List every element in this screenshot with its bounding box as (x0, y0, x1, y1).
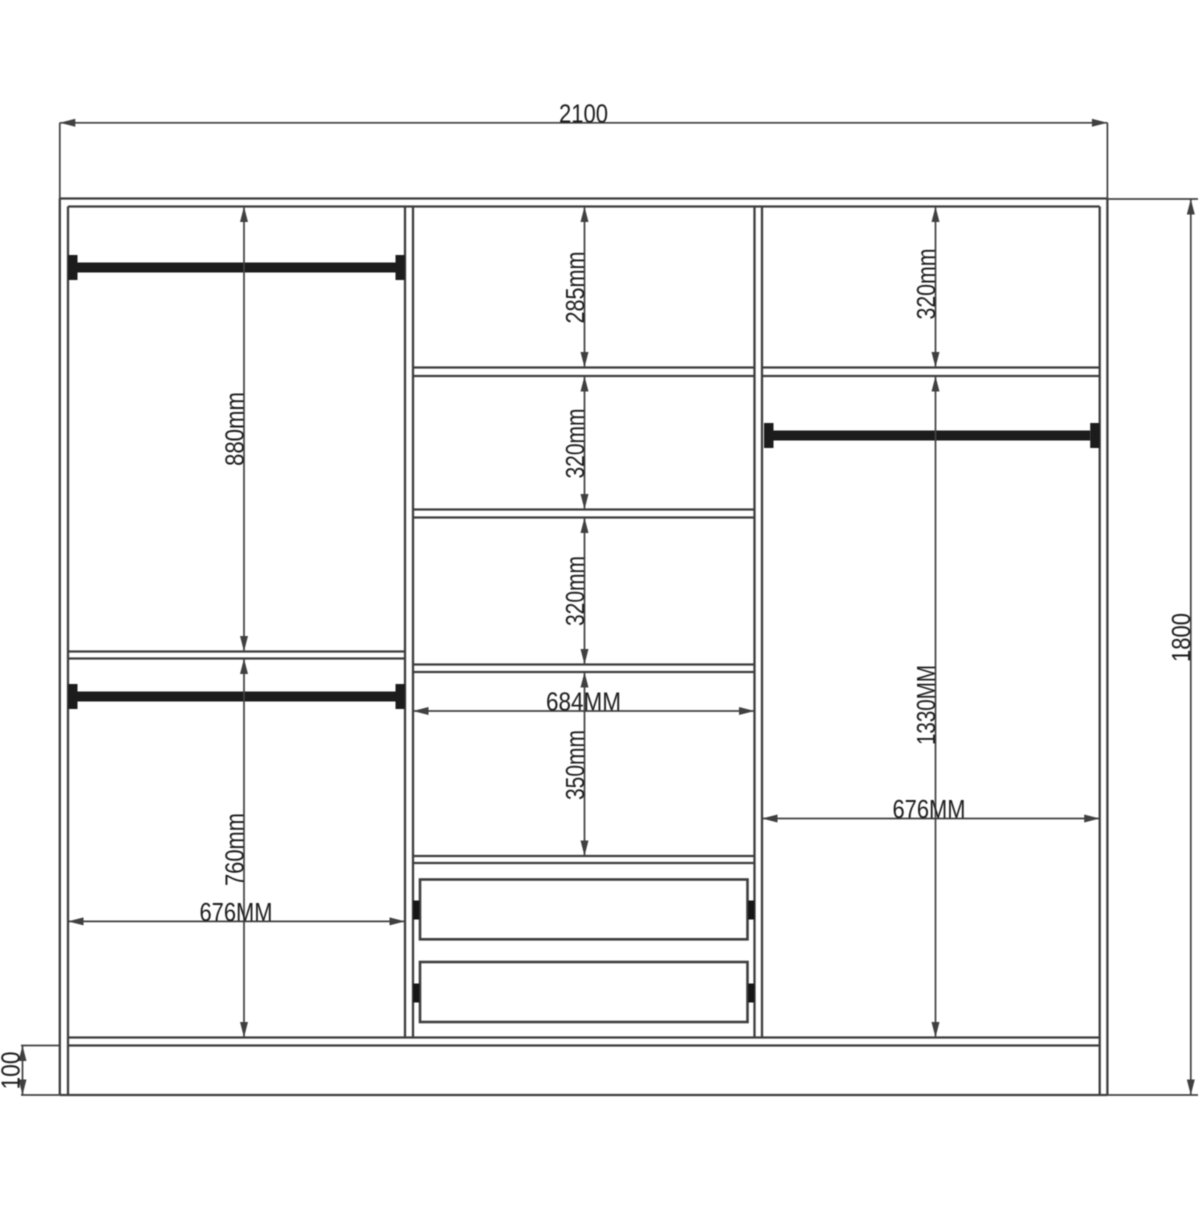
svg-text:1330MM: 1330MM (911, 665, 941, 745)
svg-text:760mm: 760mm (220, 813, 250, 886)
svg-text:684MM: 684MM (546, 687, 621, 717)
svg-text:1800: 1800 (1166, 613, 1196, 662)
svg-text:285mm: 285mm (560, 252, 590, 324)
svg-text:676MM: 676MM (893, 794, 966, 824)
svg-text:320mm: 320mm (560, 556, 590, 626)
svg-text:320mm: 320mm (911, 249, 941, 320)
svg-text:880mm: 880mm (220, 392, 250, 466)
svg-text:350mm: 350mm (560, 730, 590, 800)
svg-text:2100: 2100 (559, 98, 608, 128)
svg-text:676MM: 676MM (200, 897, 273, 927)
svg-text:100: 100 (0, 1052, 26, 1090)
svg-text:320mm: 320mm (560, 409, 590, 479)
